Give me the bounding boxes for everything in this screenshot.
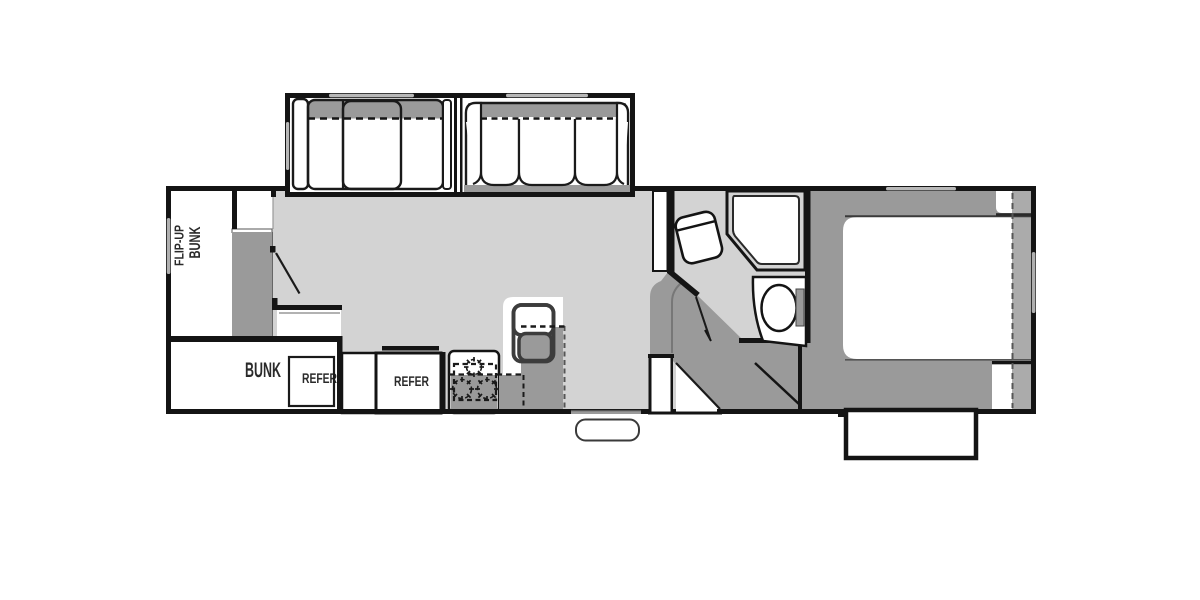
svg-text:FLIP-UP: FLIP-UP (172, 225, 187, 266)
svg-text:REFER: REFER (302, 370, 337, 386)
svg-text:REFER: REFER (394, 373, 429, 389)
svg-text:BUNK: BUNK (245, 359, 281, 382)
svg-text:BUNK: BUNK (187, 226, 204, 259)
